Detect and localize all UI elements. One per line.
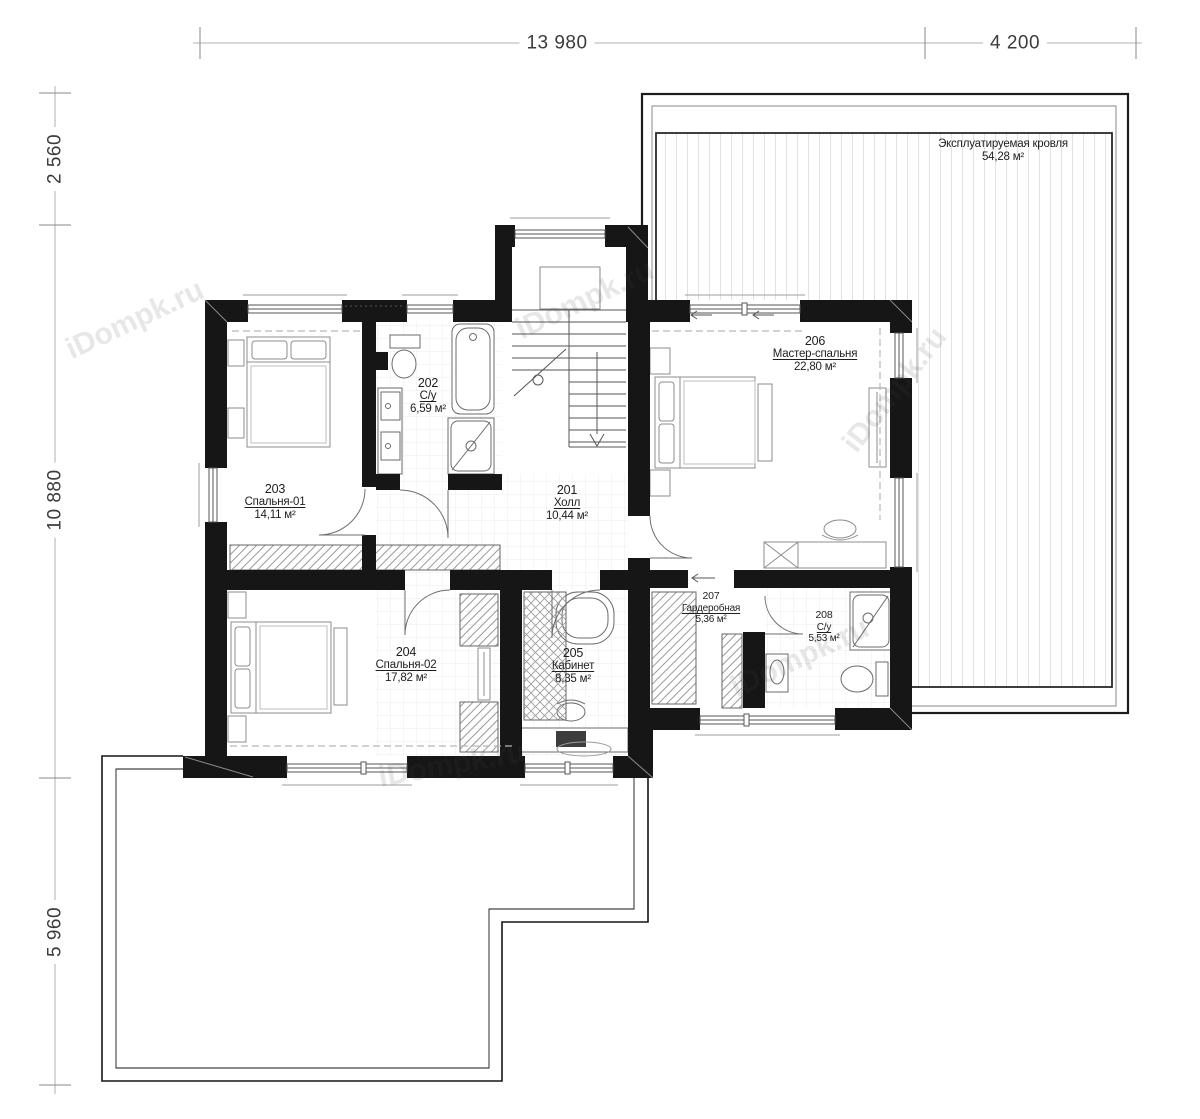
- room-name: Мастер-спальня: [773, 348, 857, 361]
- room-area: 5,36 м²: [682, 614, 740, 625]
- room-number: 202: [410, 376, 446, 390]
- dimension-label-top-1: 13 980: [519, 33, 594, 54]
- room-area: 22,80 м²: [773, 361, 857, 374]
- room-number: 201: [546, 483, 588, 497]
- room-number: 205: [552, 646, 594, 660]
- dimension-label-left-1: 2 560: [45, 127, 66, 191]
- room-number: 208: [808, 610, 839, 622]
- roof-label: Эксплуатируемая кровля 54,28 м²: [938, 138, 1068, 164]
- room-area: 10,44 м²: [546, 510, 588, 523]
- room-name: Кабинет: [552, 660, 594, 673]
- floor-plan: 13 980 4 200 2 560 10 880 5 960 Эксплуат…: [0, 0, 1200, 1119]
- room-label-201: 201 Холл 10,44 м²: [546, 483, 588, 523]
- roof-name: Эксплуатируемая кровля: [938, 138, 1068, 151]
- floor-plan-drawing: [0, 0, 1200, 1119]
- room-name: Гардеробная: [682, 603, 740, 614]
- room-label-203: 203 Спальня-01 14,11 м²: [245, 482, 306, 522]
- room-label-205: 205 Кабинет 8,35 м²: [552, 646, 594, 686]
- roof-area: 54,28 м²: [938, 151, 1068, 164]
- room-number: 204: [376, 645, 437, 659]
- dimension-label-left-2: 10 880: [45, 462, 66, 537]
- room-name: С/у: [410, 390, 446, 403]
- room-label-206: 206 Мастер-спальня 22,80 м²: [773, 334, 857, 374]
- room-name: Спальня-01: [245, 496, 306, 509]
- room-name: Спальня-02: [376, 659, 437, 672]
- dimension-label-left-3: 5 960: [45, 900, 66, 964]
- room-area: 6,59 м²: [410, 403, 446, 416]
- lower-terrace-outline: [102, 756, 648, 1081]
- room-name: Холл: [546, 497, 588, 510]
- room-label-202: 202 С/у 6,59 м²: [410, 376, 446, 416]
- room-label-207: 207 Гардеробная 5,36 м²: [682, 591, 740, 625]
- room-area: 8,35 м²: [552, 673, 594, 686]
- room-area: 17,82 м²: [376, 672, 437, 685]
- room-number: 206: [773, 334, 857, 348]
- room-number: 207: [682, 591, 740, 603]
- room-label-204: 204 Спальня-02 17,82 м²: [376, 645, 437, 685]
- room-area: 14,11 м²: [245, 509, 306, 522]
- room-number: 203: [245, 482, 306, 496]
- dimension-label-top-2: 4 200: [983, 33, 1047, 54]
